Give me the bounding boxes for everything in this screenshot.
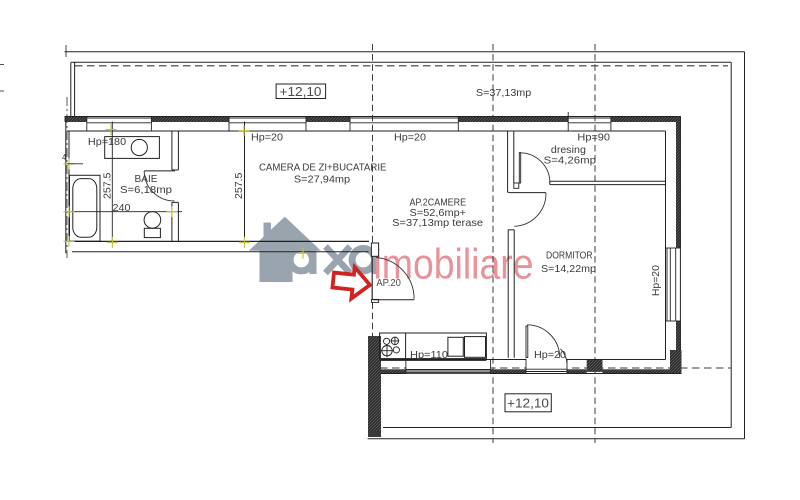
svg-text:Hp=20: Hp=20 (650, 265, 662, 296)
svg-text:Hp=20: Hp=20 (394, 131, 426, 143)
svg-text:Hp=90: Hp=90 (577, 131, 610, 143)
svg-text:4: 4 (62, 153, 67, 162)
svg-text:CAMERA DE ZI+BUCATARIE: CAMERA DE ZI+BUCATARIE (259, 162, 387, 174)
svg-text:257.5: 257.5 (233, 172, 245, 199)
svg-text:S=6,18mp: S=6,18mp (120, 184, 172, 196)
svg-text:S=4,26mp: S=4,26mp (544, 154, 596, 166)
svg-text:Hp=20: Hp=20 (251, 131, 283, 143)
svg-text:DORMITOR: DORMITOR (546, 249, 593, 261)
svg-text:AP.20: AP.20 (376, 277, 401, 289)
svg-text:S=14,22mp: S=14,22mp (541, 263, 596, 275)
svg-text:S=37,13mp: S=37,13mp (476, 87, 531, 99)
svg-text:240: 240 (113, 202, 131, 214)
svg-text:S=37,13mp terase: S=37,13mp terase (392, 217, 483, 229)
svg-text:Hp=180: Hp=180 (88, 136, 126, 148)
svg-text:S=27,94mp: S=27,94mp (294, 174, 350, 186)
svg-text:Hp=20: Hp=20 (534, 349, 566, 361)
svg-text:+12,10: +12,10 (280, 85, 322, 99)
svg-text:257.5: 257.5 (101, 172, 113, 199)
svg-text:Hp=110: Hp=110 (410, 349, 448, 361)
svg-text:+12,10: +12,10 (507, 397, 549, 411)
